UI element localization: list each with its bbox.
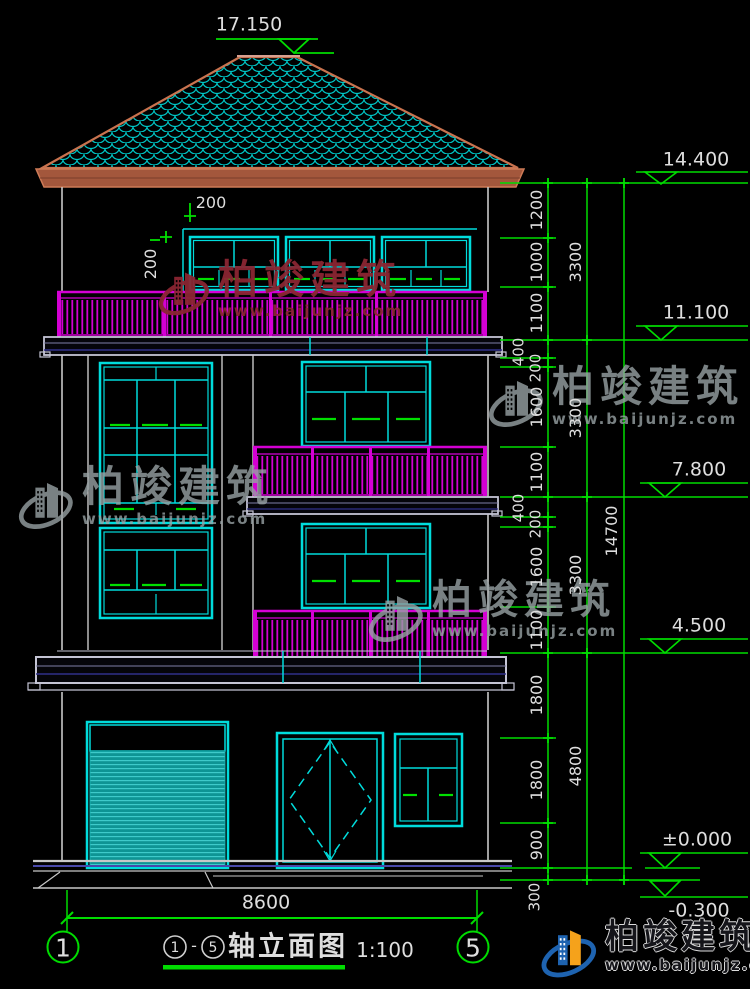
watermark-url: www.baijunjz.com <box>432 624 617 639</box>
ridge-elevation-marker <box>216 39 334 53</box>
elevation-label-ridge: 17.150 <box>216 16 282 35</box>
title-axis-end: 5 <box>209 941 218 955</box>
parapet-offset-marks <box>150 203 190 240</box>
dim-label: 1800 <box>529 760 545 801</box>
title-axis-start: 1 <box>171 941 180 955</box>
dim-label: 1200 <box>529 190 545 231</box>
brand-logo-icon <box>368 580 426 656</box>
ground-floor <box>62 692 488 868</box>
dim-label: 200 <box>529 510 544 539</box>
dim-label: 200 <box>529 354 544 383</box>
watermark-url: www.baijunjz.com <box>605 958 750 973</box>
dim-label: 1100 <box>529 293 545 334</box>
dim-label-parapet-v: 200 <box>143 249 159 280</box>
entry-door <box>277 733 383 868</box>
dim-label: 1100 <box>529 610 545 651</box>
garage-door <box>87 722 228 868</box>
cornice-11100 <box>40 337 506 357</box>
marker-11100 <box>636 326 748 340</box>
title-separator: - <box>191 938 197 954</box>
marker-zero <box>640 853 748 868</box>
brand-logo-icon <box>18 466 76 544</box>
ground-line <box>33 861 512 888</box>
dim-label: 1600 <box>529 547 545 588</box>
brand-logo-icon <box>540 920 600 984</box>
window-floor3 <box>302 362 430 446</box>
elevation-drawing-canvas: 柏竣建筑 www.baijunjz.com 柏竣建筑 www.baijunjz.… <box>0 0 750 989</box>
watermark-brand: 柏竣建筑 <box>218 260 403 300</box>
ground-window <box>395 734 462 826</box>
watermark-url: www.baijunjz.com <box>218 304 403 319</box>
watermark-top: 柏竣建筑 www.baijunjz.com <box>158 260 403 326</box>
dim-label: 1800 <box>529 675 545 716</box>
dim-label: 900 <box>529 830 545 861</box>
dim-label-overall-width: 8600 <box>242 894 290 913</box>
elevation-label-level2: 7.800 <box>672 461 726 480</box>
watermark-brand: 柏竣建筑 <box>82 466 274 508</box>
axis-number-right: 5 <box>465 936 481 961</box>
dim-label: 400 <box>512 494 527 523</box>
drawing-title: 轴立面图 <box>228 934 348 961</box>
dim-label-parapet-h: 200 <box>196 195 227 211</box>
marker-site <box>640 880 748 897</box>
marker-4500 <box>640 639 748 653</box>
balcony-floor3 <box>253 446 487 496</box>
elevation-label-zero: ±0.000 <box>662 831 732 850</box>
dim-label: 1600 <box>529 387 545 428</box>
marker-14400 <box>636 172 748 184</box>
dim-label-group: 4800 <box>568 746 584 787</box>
dim-label: 400 <box>512 338 527 367</box>
dim-label-group: 3300 <box>568 242 584 283</box>
dim-label: 300 <box>528 883 543 912</box>
brand-logo-footer: 柏竣建筑 www.baijunjz.com <box>540 920 750 984</box>
elevation-label-level1: 4.500 <box>672 617 726 636</box>
cornice-4500 <box>28 651 514 690</box>
dim-label: 1100 <box>529 452 545 493</box>
dim-label-group: 3300 <box>568 555 584 596</box>
dim-label: 1000 <box>529 242 545 283</box>
elevation-label-site: -0.300 <box>668 902 729 921</box>
axis-number-left: 1 <box>55 936 71 961</box>
watermark-left: 柏竣建筑 www.baijunjz.com <box>18 466 274 544</box>
elevation-markers <box>636 172 748 897</box>
dim-label-total: 14700 <box>604 506 620 557</box>
marker-7800 <box>640 483 748 497</box>
watermark-url: www.baijunjz.com <box>82 512 274 527</box>
elevation-label-level3: 11.100 <box>663 304 729 323</box>
elevation-label-eave: 14.400 <box>663 151 729 170</box>
dim-label-group: 3300 <box>568 398 584 439</box>
drawing-scale: 1:100 <box>356 940 414 960</box>
watermark-brand: 柏竣建筑 <box>605 920 750 954</box>
roof <box>36 56 524 187</box>
brand-logo-icon <box>158 260 212 326</box>
watermark-brand: 柏竣建筑 <box>432 580 617 620</box>
cornice-7800 <box>243 497 502 516</box>
